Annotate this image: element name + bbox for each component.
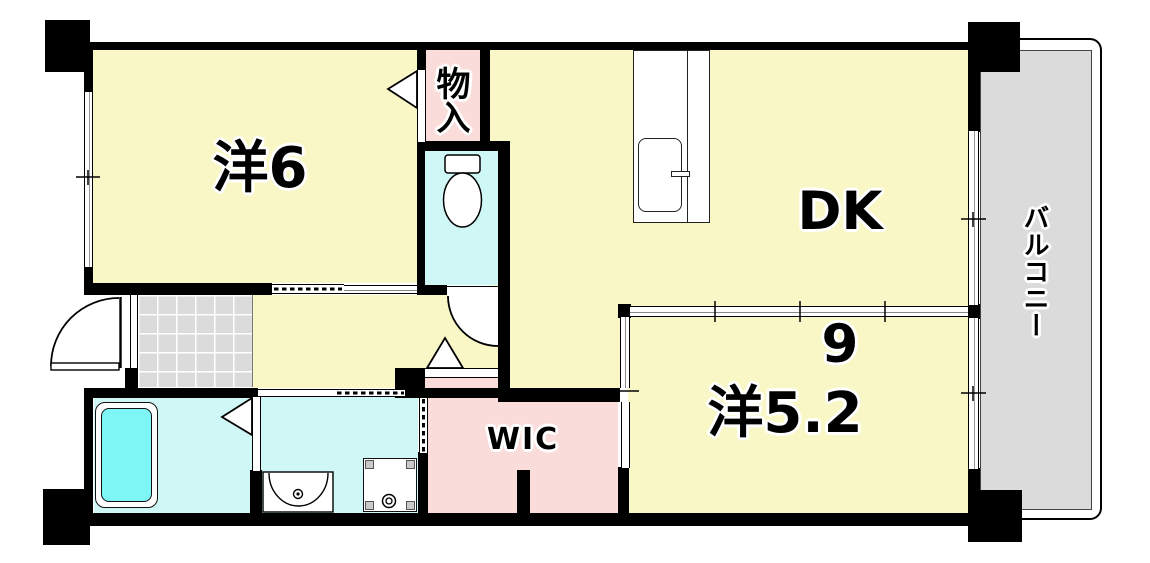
label-balcony: バルコニー: [1021, 204, 1047, 354]
label-western52: 洋5.2: [660, 379, 910, 450]
label-western6: 洋6: [145, 134, 375, 205]
washer-drain-inner: [386, 498, 392, 504]
label-wic: WIC: [462, 421, 584, 459]
toilet-tank-fill: [447, 157, 479, 172]
bathroom-door-triangle: [222, 398, 252, 435]
washbasin-drain-dot: [296, 492, 299, 495]
label-dk-name: DK: [750, 179, 930, 246]
plan-symbols-overlay: [0, 0, 1150, 563]
hall-closet-door-triangle: [427, 338, 463, 368]
label-storage: 物入: [433, 66, 467, 146]
storage-door-triangle: [388, 71, 417, 108]
floor-plan: 洋6 DK 9 洋5.2 WIC 物入 バルコニー: [0, 0, 1150, 563]
entry-door-leaf: [51, 363, 119, 370]
entry-door-swing: [51, 298, 119, 366]
toilet-bowl: [444, 173, 482, 227]
label-dk-size: 9: [750, 312, 930, 379]
